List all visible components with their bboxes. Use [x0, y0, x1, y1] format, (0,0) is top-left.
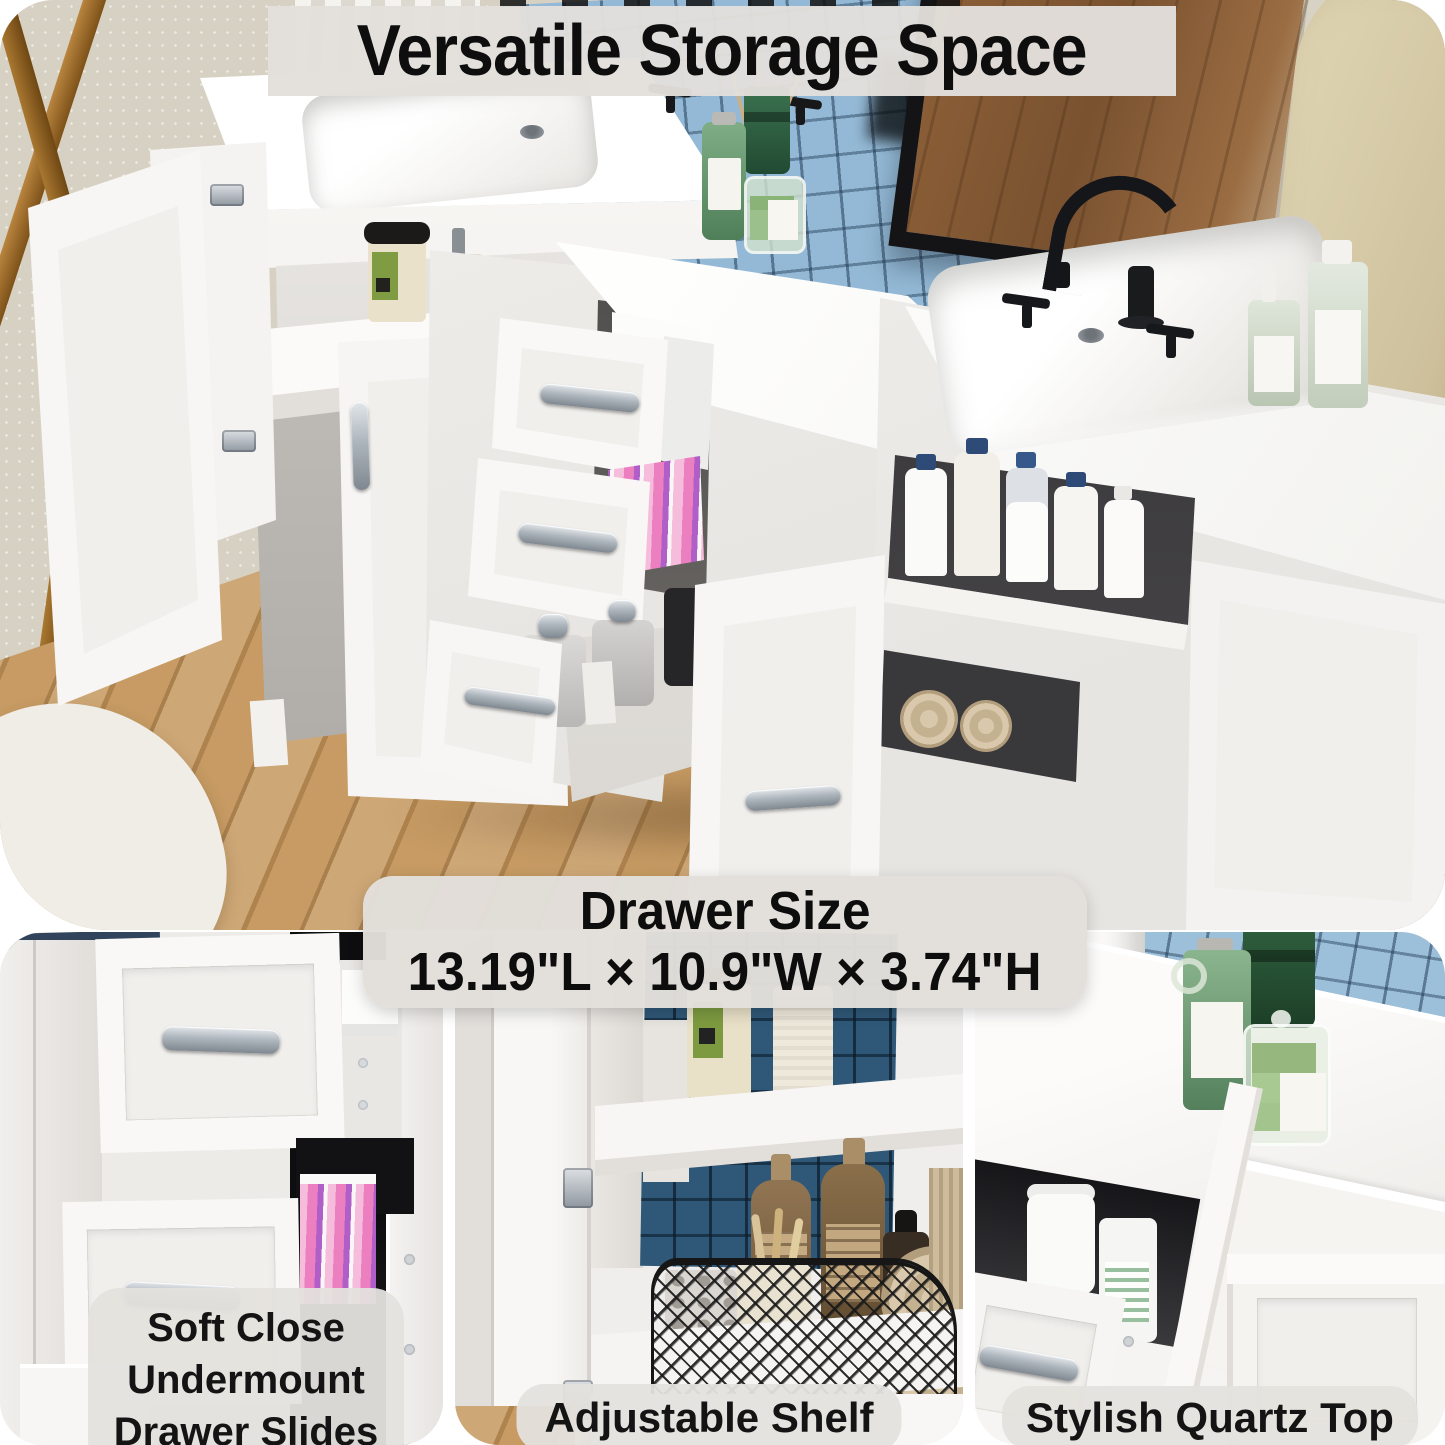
spray-bottle	[1248, 300, 1300, 406]
green-vase-band	[1243, 950, 1315, 962]
right-sink-drain	[1078, 328, 1104, 343]
headline-text: Versatile Storage Space	[357, 10, 1087, 92]
green-vase	[744, 86, 790, 174]
shampoo-bottle	[1006, 468, 1048, 582]
door-hinge	[210, 184, 244, 206]
cabinet-leg	[582, 661, 616, 725]
left-faucet-handle-stem	[666, 93, 675, 113]
screw	[1123, 1336, 1134, 1347]
towel-roll	[960, 700, 1012, 752]
drawer-size-callout: Drawer Size 13.19"L × 10.9"W × 3.74"H	[363, 876, 1087, 1008]
white-jar	[1027, 1194, 1095, 1294]
screw	[358, 1058, 368, 1068]
cabinet-leg	[250, 699, 289, 767]
feature-label-text: Adjustable Shelf	[544, 1394, 873, 1441]
green-vase-band	[744, 112, 790, 122]
white-jar	[773, 996, 833, 1100]
left-faucet-handle-stem	[796, 105, 805, 125]
glass-jar	[1243, 1024, 1331, 1146]
faucet-tip	[1054, 262, 1070, 288]
door-hinge	[563, 1168, 593, 1208]
shampoo-bottle	[905, 468, 947, 576]
drawer-handle	[162, 1026, 281, 1054]
feature-label-quartz-top: Stylish Quartz Top	[1002, 1386, 1418, 1445]
pink-packs	[300, 1184, 376, 1304]
product-collage: Versatile Storage Space Soft Close	[0, 0, 1445, 1445]
towel-roll	[900, 690, 958, 748]
shampoo-bottle	[954, 452, 1000, 576]
feature-label-line: Undermount	[94, 1354, 398, 1406]
faucet-handle-stem	[1166, 334, 1176, 358]
shampoo-cap	[916, 454, 936, 470]
faucet-handle-stem	[1022, 304, 1032, 328]
headline-banner: Versatile Storage Space	[268, 6, 1176, 96]
canister-label-patch	[376, 278, 390, 292]
drawer-size-dimensions: 13.19"L × 10.9"W × 3.74"H	[408, 941, 1042, 1003]
feature-label-text: Stylish Quartz Top	[1026, 1394, 1394, 1441]
drawer-size-title: Drawer Size	[580, 881, 871, 941]
canister-label	[372, 252, 398, 300]
spray-cap	[1322, 240, 1352, 264]
main-photo-versatile-storage: Versatile Storage Space	[0, 0, 1445, 930]
jar-label	[768, 200, 798, 240]
green-bottle-label	[708, 158, 741, 210]
shampoo-cap	[1066, 472, 1086, 487]
feature-photo-quartz-top: Stylish Quartz Top	[975, 932, 1445, 1445]
shampoo-cap	[1114, 486, 1132, 500]
bottle-handle-loop	[1171, 958, 1207, 994]
canister-lid	[364, 222, 430, 244]
screw	[404, 1344, 415, 1355]
jar-label	[1280, 1073, 1326, 1131]
shampoo-cap	[1016, 452, 1036, 468]
spray-bottle	[1308, 262, 1368, 408]
feature-photo-drawer-slides: Soft Close Undermount Drawer Slides	[0, 932, 443, 1445]
shampoo-cap	[966, 438, 988, 454]
canister-label-patch	[699, 1028, 715, 1044]
spray-bottle-label	[1254, 336, 1294, 392]
door-hinge	[222, 430, 256, 452]
green-bottle-cap	[712, 112, 736, 125]
perfume-cap	[538, 614, 568, 638]
screw	[404, 1254, 415, 1265]
shampoo-bottle	[1104, 500, 1144, 598]
canister	[368, 236, 426, 322]
feature-label-drawer-slides: Soft Close Undermount Drawer Slides	[88, 1288, 404, 1445]
feature-photo-adjustable-shelf: Adjustable Shelf	[455, 932, 963, 1445]
green-bottle-label	[1191, 1002, 1243, 1078]
screw	[358, 1100, 368, 1110]
shampoo-bottle	[1054, 486, 1098, 590]
door-handle	[350, 402, 370, 491]
feature-label-line: Drawer Slides	[94, 1406, 398, 1445]
feature-label-adjustable-shelf: Adjustable Shelf	[516, 1384, 901, 1445]
shade-strip	[455, 932, 491, 1445]
spray-pump	[1262, 272, 1276, 302]
perfume-cap	[608, 600, 636, 622]
left-sink-drain	[520, 125, 544, 139]
spray-bottle-label	[1315, 310, 1361, 384]
feature-label-line: Soft Close	[94, 1302, 398, 1354]
